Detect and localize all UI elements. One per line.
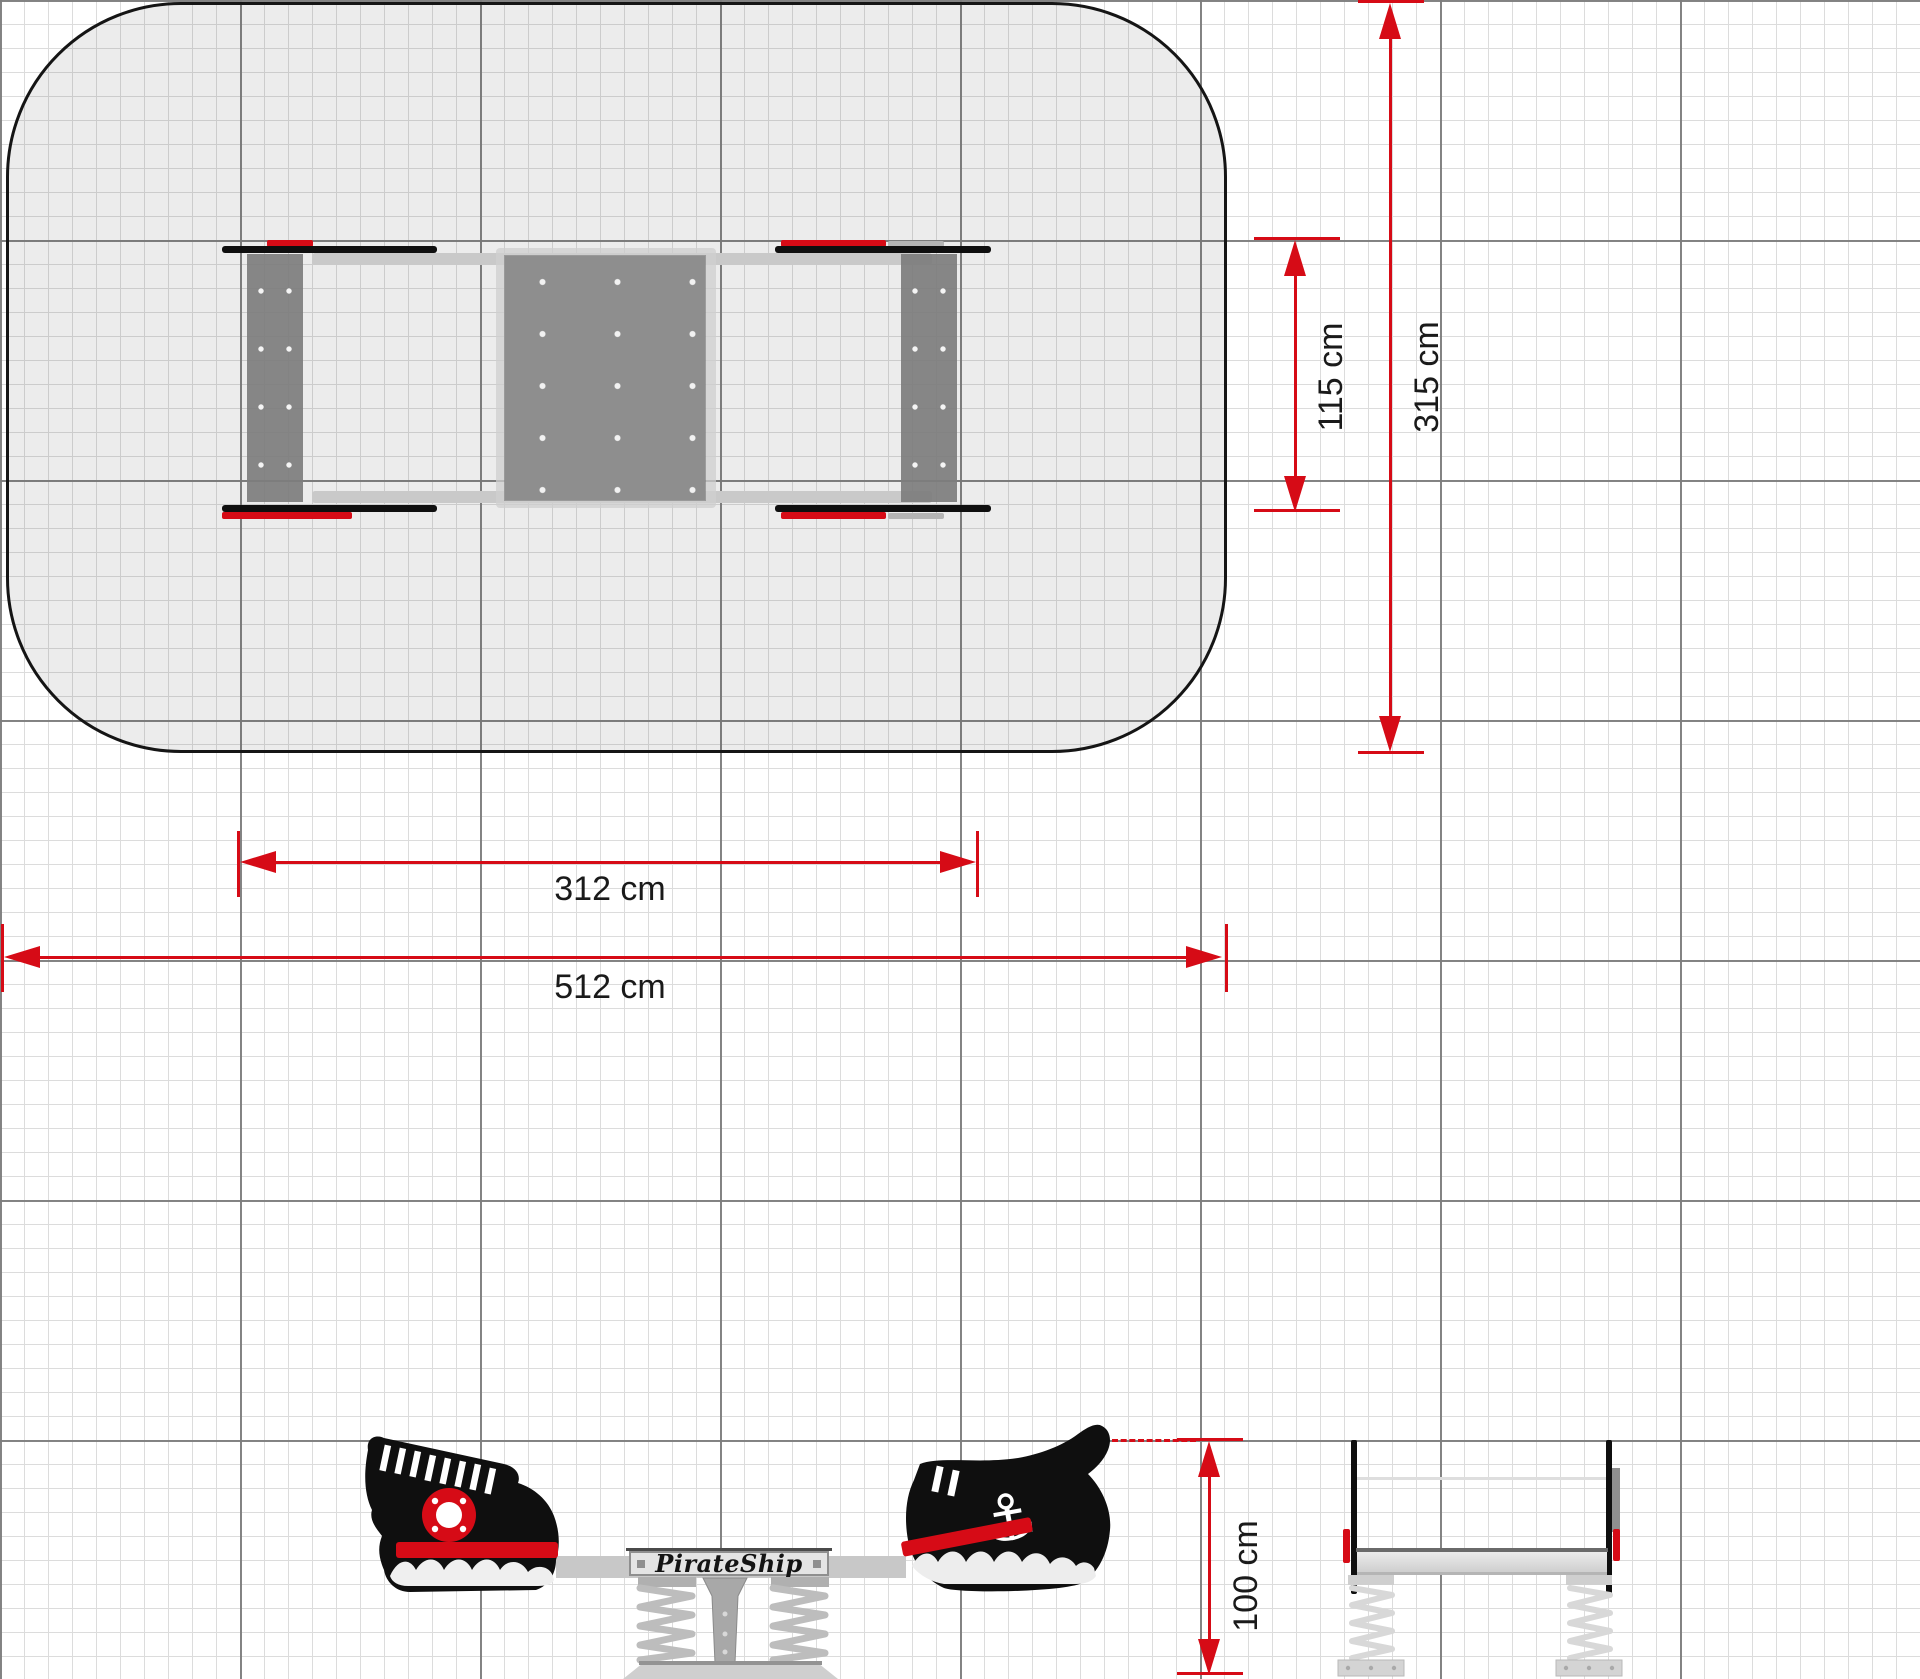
dim-label-100: 100 cm [1226, 1506, 1266, 1646]
arrow-up-icon [1379, 3, 1401, 39]
dim-line [258, 861, 958, 864]
drawing-sheet: 115 cm 315 cm 312 cm 512 cm 100 cm [0, 0, 1920, 1679]
arrow-down-icon [1284, 476, 1306, 512]
spring-coil-left [1352, 1588, 1392, 1658]
dim-line [1389, 16, 1392, 740]
dim-label-115: 115 cm [1311, 307, 1351, 447]
seat-edge-ghost [1612, 1468, 1620, 1532]
brand-label: PirateShip [631, 1553, 827, 1574]
dim-label-315: 315 cm [1407, 307, 1447, 447]
side-understructure [595, 1574, 925, 1679]
arrow-down-icon [1198, 1639, 1220, 1675]
ground-base [623, 1663, 838, 1679]
seat-accent-bottom-right [781, 512, 886, 519]
dim-label-512: 512 cm [510, 967, 710, 1007]
rear-rail-ghost [1357, 1477, 1607, 1480]
dim-line [1208, 1455, 1211, 1660]
bolt-icon [723, 1612, 728, 1617]
handle-bar-top-left [222, 246, 437, 253]
spring-coil-right [1570, 1588, 1610, 1658]
spring-coil-right [773, 1588, 825, 1660]
handle-bar-top-right [775, 246, 991, 253]
brand-plate: PirateShip [629, 1551, 829, 1576]
arrow-up-icon [1198, 1441, 1220, 1477]
hull-stripe [396, 1542, 558, 1558]
spring-mount [1566, 1575, 1612, 1585]
arrow-right-icon [1186, 946, 1222, 968]
handle-bar-bottom-left [222, 505, 437, 512]
dim-tick [1225, 924, 1228, 992]
dim-line [16, 956, 1212, 959]
ship-seat-left [352, 1424, 567, 1596]
arrow-right-icon [940, 851, 976, 873]
spring-mount [1348, 1575, 1394, 1585]
arrow-left-icon [4, 946, 40, 968]
arrow-left-icon [240, 851, 276, 873]
bolt-icon [723, 1650, 728, 1655]
dim-label-312: 312 cm [510, 869, 710, 909]
arrow-down-icon [1379, 716, 1401, 752]
center-platform [505, 256, 705, 500]
arrow-up-icon [1284, 240, 1306, 276]
porthole-icon [422, 1488, 476, 1542]
seat-accent-bottom-left [222, 512, 352, 519]
stripe-edge-right [1613, 1529, 1620, 1561]
ship-seat-right: ⚓ [890, 1418, 1122, 1598]
seat-panel-right [901, 254, 957, 502]
seat-beam-front [1357, 1552, 1607, 1575]
dim-line [1294, 262, 1297, 490]
dim-tick [976, 831, 979, 897]
ground-base-edge [639, 1661, 822, 1665]
spring-coil-left [640, 1588, 692, 1660]
plate-bolt [637, 1560, 645, 1568]
handle-bar-bottom-right [775, 505, 991, 512]
front-understructure [1330, 1574, 1630, 1679]
bolt-icon [723, 1632, 728, 1637]
stripe-edge-left [1343, 1529, 1350, 1563]
seat-panel-left [247, 254, 303, 502]
step-ghost-bottom-right [888, 513, 944, 519]
plate-bolt [813, 1560, 821, 1568]
